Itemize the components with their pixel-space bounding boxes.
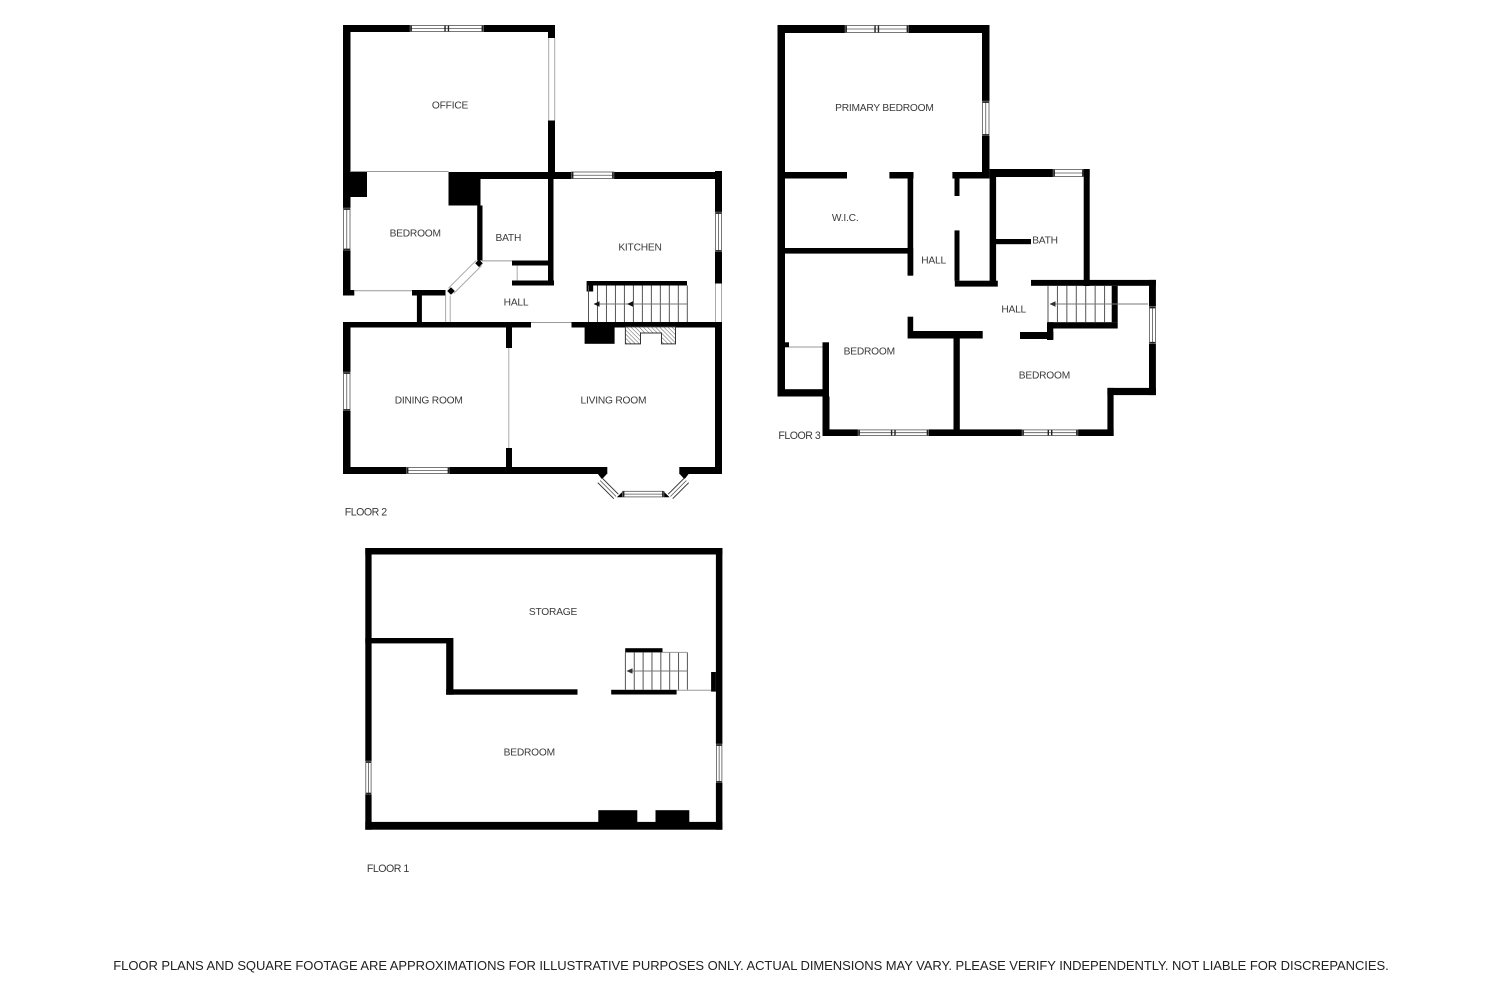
svg-text:FLOOR 1: FLOOR 1 bbox=[367, 863, 409, 875]
svg-text:BATH: BATH bbox=[1032, 236, 1058, 247]
svg-text:STORAGE: STORAGE bbox=[529, 607, 578, 618]
svg-text:BEDROOM: BEDROOM bbox=[390, 228, 441, 239]
svg-text:HALL: HALL bbox=[1001, 305, 1026, 316]
svg-text:HALL: HALL bbox=[921, 256, 946, 267]
svg-text:BATH: BATH bbox=[495, 233, 521, 244]
svg-text:BEDROOM: BEDROOM bbox=[1019, 370, 1070, 381]
svg-text:W.I.C.: W.I.C. bbox=[832, 213, 859, 224]
svg-text:OFFICE: OFFICE bbox=[432, 100, 469, 111]
svg-text:KITCHEN: KITCHEN bbox=[618, 243, 661, 254]
svg-text:BEDROOM: BEDROOM bbox=[844, 346, 895, 357]
svg-text:HALL: HALL bbox=[504, 298, 529, 309]
svg-text:DINING ROOM: DINING ROOM bbox=[395, 396, 463, 407]
svg-text:PRIMARY BEDROOM: PRIMARY BEDROOM bbox=[835, 103, 934, 114]
svg-text:FLOOR 2: FLOOR 2 bbox=[345, 506, 387, 518]
svg-text:BEDROOM: BEDROOM bbox=[504, 747, 555, 758]
svg-text:LIVING ROOM: LIVING ROOM bbox=[581, 396, 647, 407]
svg-text:FLOOR PLANS AND SQUARE FOOTAGE: FLOOR PLANS AND SQUARE FOOTAGE ARE APPRO… bbox=[113, 958, 1388, 973]
svg-text:FLOOR 3: FLOOR 3 bbox=[778, 430, 820, 442]
